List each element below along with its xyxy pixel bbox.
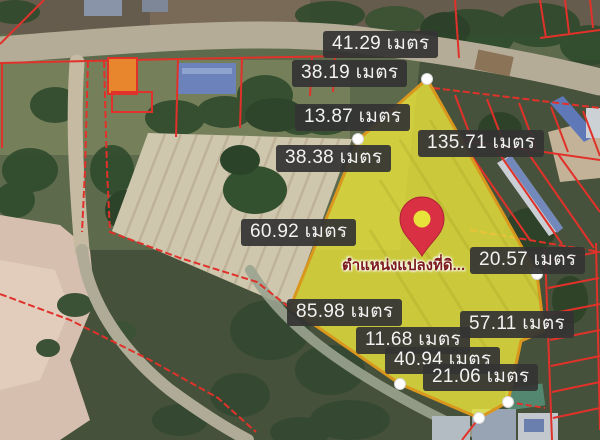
map-screenshot: ตำแหน่งแปลงที่ดิ... 41.29 เมตร 38.19 เมต…: [0, 0, 600, 440]
measurement-label: 13.87 เมตร: [295, 104, 410, 131]
measurement-label: 85.98 เมตร: [287, 299, 402, 326]
vertex-dot: [422, 74, 433, 85]
measurement-label: 20.57 เมตร: [470, 247, 585, 274]
measurement-label: 21.06 เมตร: [423, 364, 538, 391]
vertex-dot: [503, 397, 514, 408]
measurement-label: 57.11 เมตร: [460, 311, 574, 338]
vertex-dot: [395, 379, 406, 390]
vertex-dot: [474, 413, 485, 424]
measurement-label: 38.38 เมตร: [276, 145, 391, 172]
measurement-label: 41.29 เมตร: [323, 31, 438, 58]
measurement-label: 60.92 เมตร: [241, 219, 356, 246]
pin-caption: ตำแหน่งแปลงที่ดิ...: [342, 253, 465, 277]
measurement-label: 38.19 เมตร: [292, 60, 407, 87]
measurement-label: 135.71 เมตร: [418, 130, 544, 157]
vertex-dot: [353, 134, 364, 145]
